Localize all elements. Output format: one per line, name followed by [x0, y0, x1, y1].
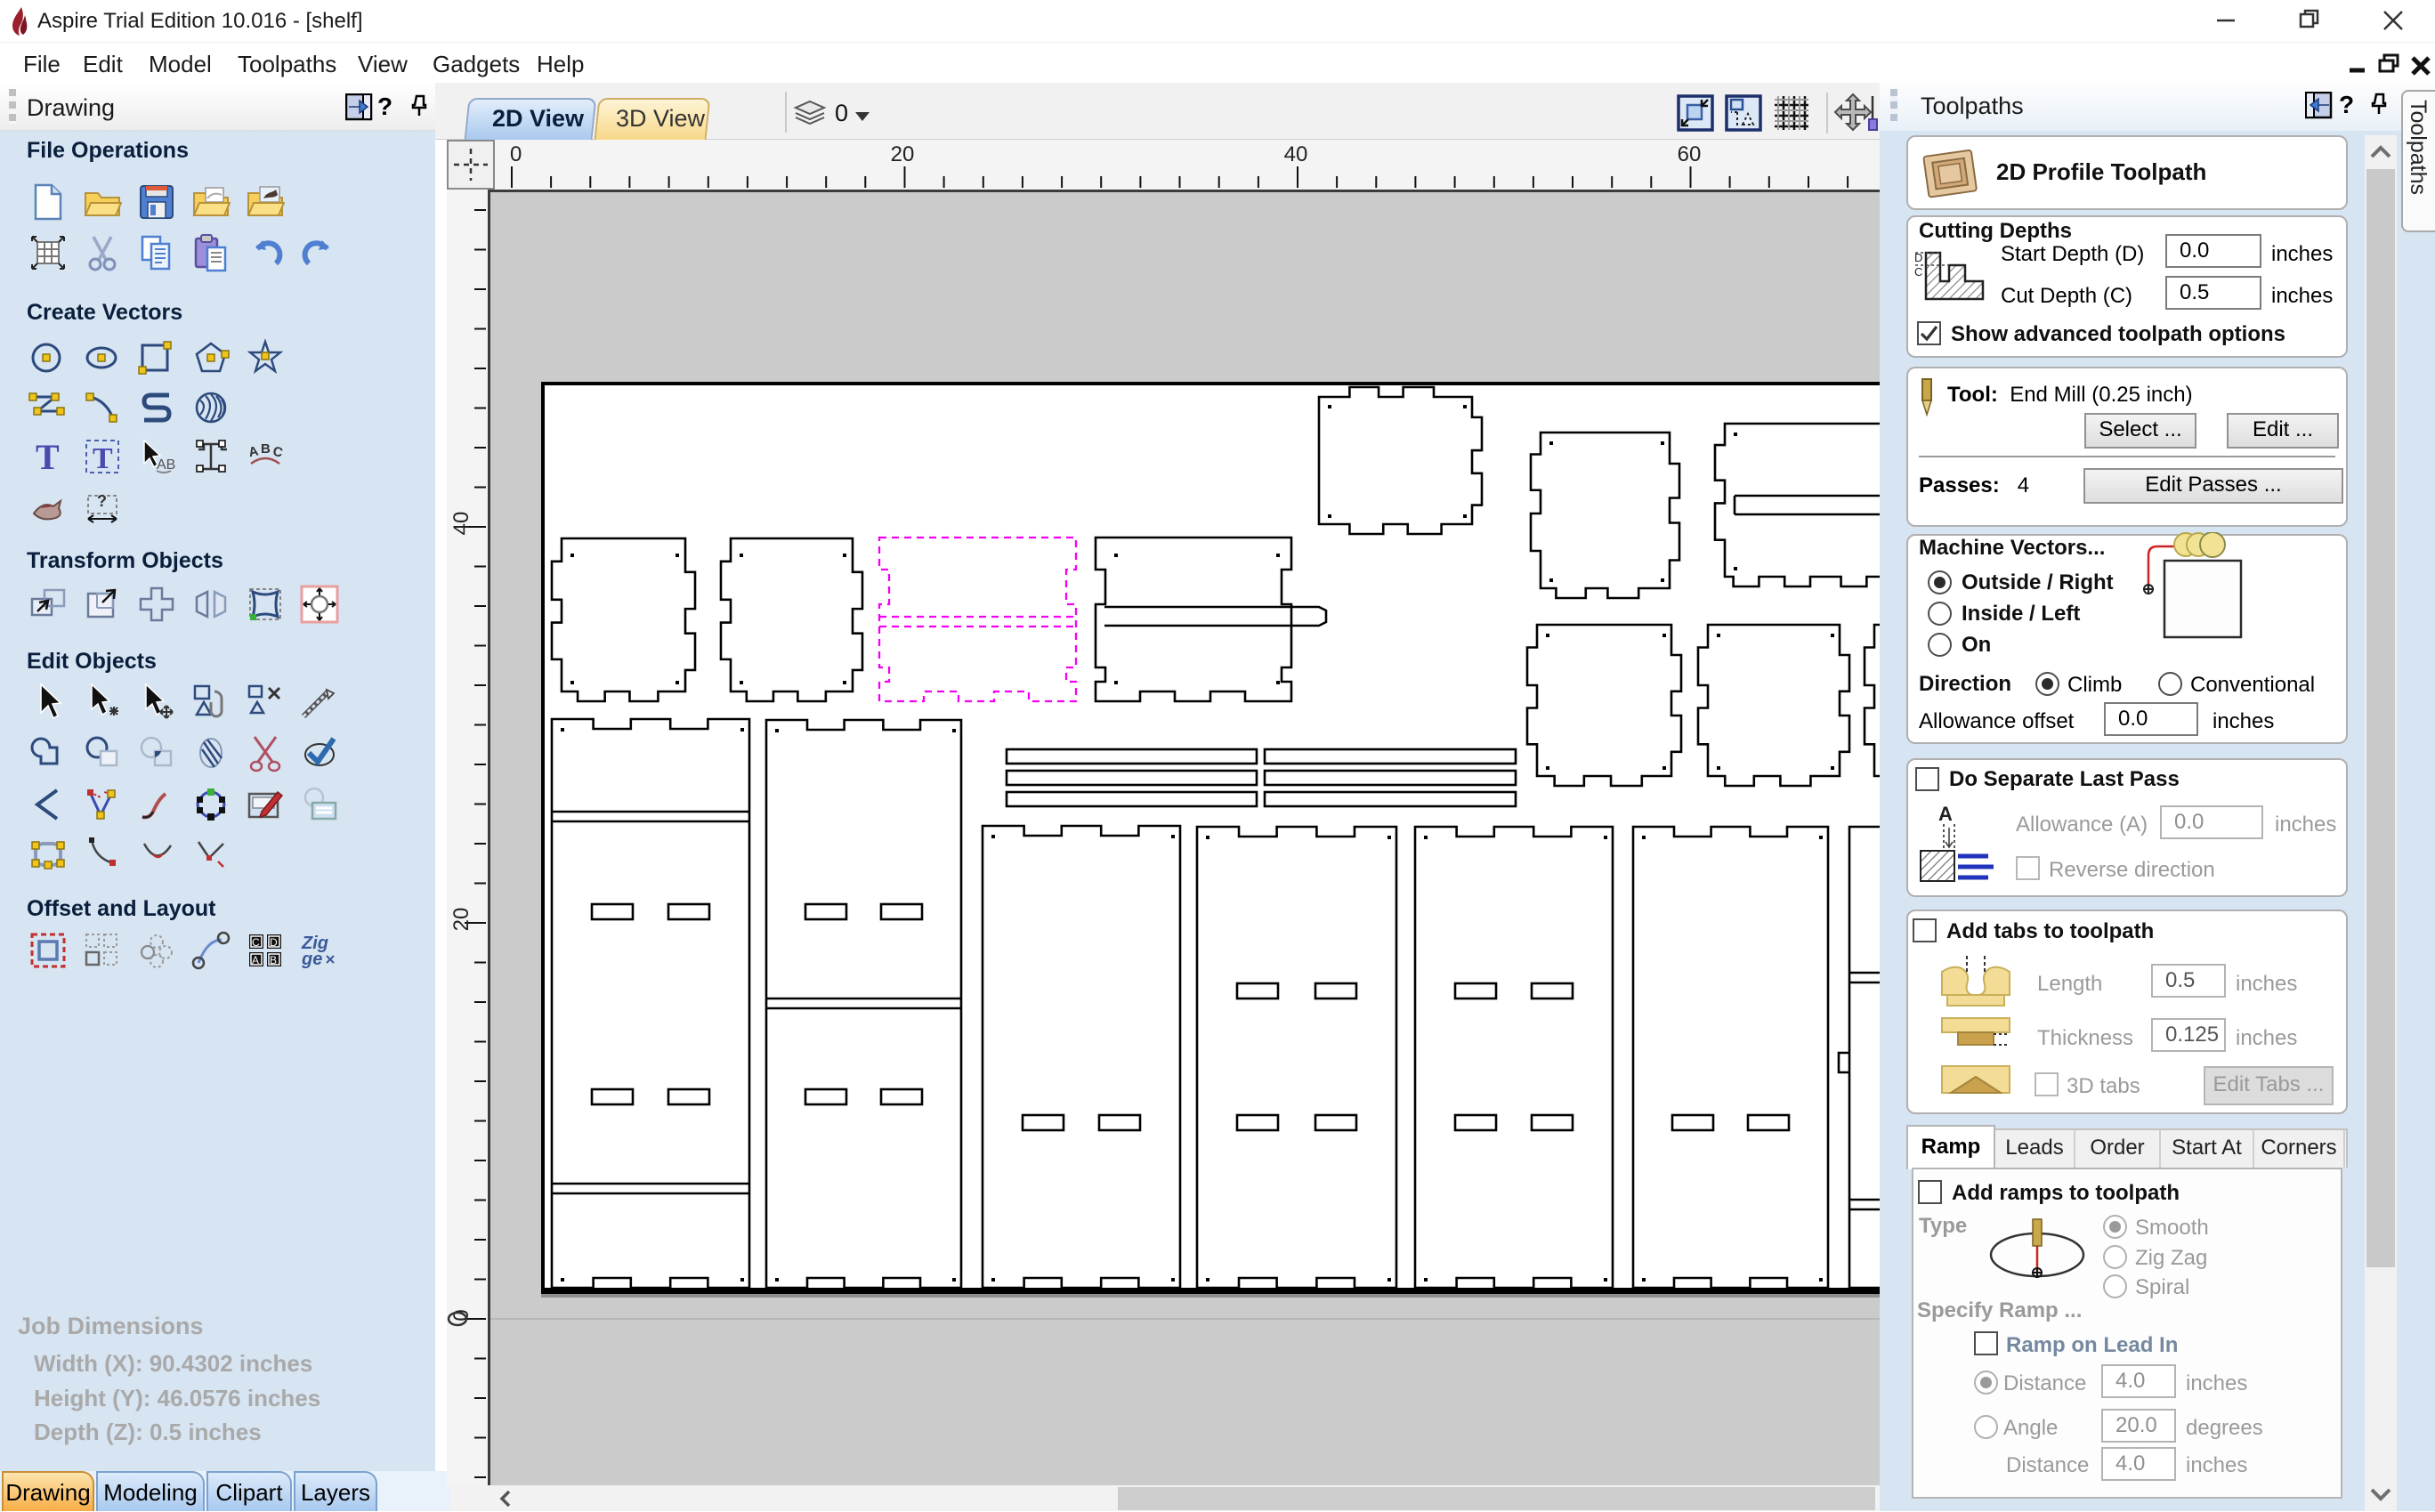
svg-text:20: 20 — [891, 142, 915, 166]
svg-text:B: B — [261, 441, 271, 457]
svg-text:?: ? — [97, 492, 107, 510]
svg-text:0: 0 — [510, 142, 522, 166]
svg-text:AB: AB — [157, 457, 175, 473]
svg-text:T: T — [93, 442, 113, 475]
svg-text:C: C — [1914, 265, 1922, 279]
svg-text:A: A — [247, 443, 260, 460]
svg-text:D: D — [1914, 251, 1922, 264]
svg-text:40: 40 — [449, 512, 473, 536]
svg-text:0: 0 — [449, 1309, 473, 1321]
svg-text:ge: ge — [301, 950, 322, 969]
svg-text:T: T — [36, 437, 60, 476]
svg-text:20: 20 — [449, 908, 473, 932]
svg-text:60: 60 — [1678, 142, 1702, 166]
svg-text:A: A — [1938, 803, 1953, 825]
svg-text:C: C — [271, 444, 284, 461]
svg-text:40: 40 — [1284, 142, 1308, 166]
